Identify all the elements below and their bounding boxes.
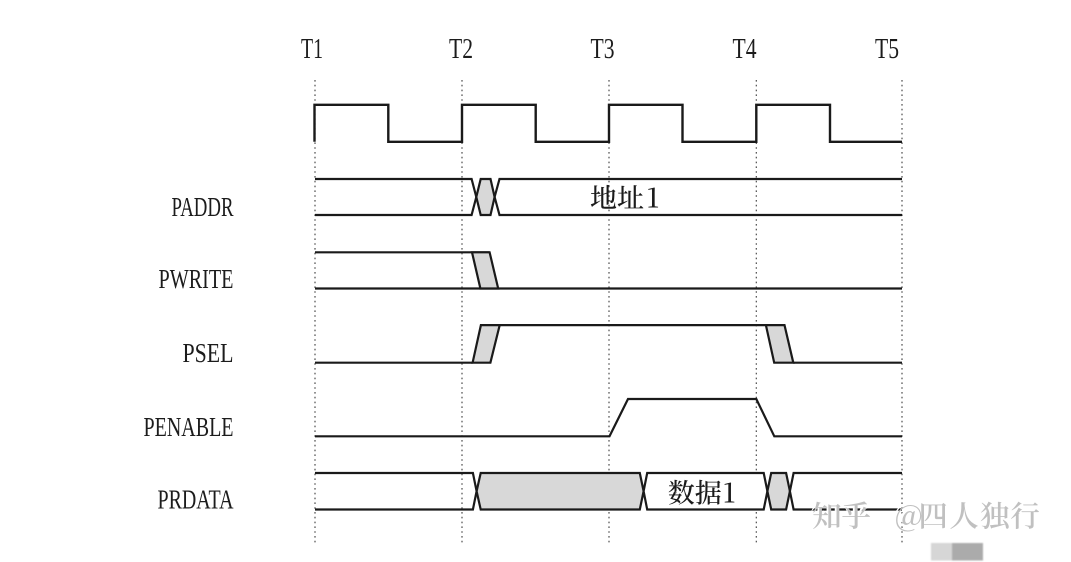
svg-text:T3: T3 [591,34,615,65]
svg-text:PSEL: PSEL [183,338,234,368]
svg-text:PWRITE: PWRITE [159,264,234,294]
svg-text:T2: T2 [449,34,473,65]
svg-text:PADDR: PADDR [172,192,234,222]
svg-text:PRDATA: PRDATA [158,485,234,515]
svg-text:T4: T4 [733,34,757,65]
svg-text:T5: T5 [875,34,899,65]
svg-text:T1: T1 [301,34,323,65]
svg-text:PENABLE: PENABLE [144,412,234,442]
